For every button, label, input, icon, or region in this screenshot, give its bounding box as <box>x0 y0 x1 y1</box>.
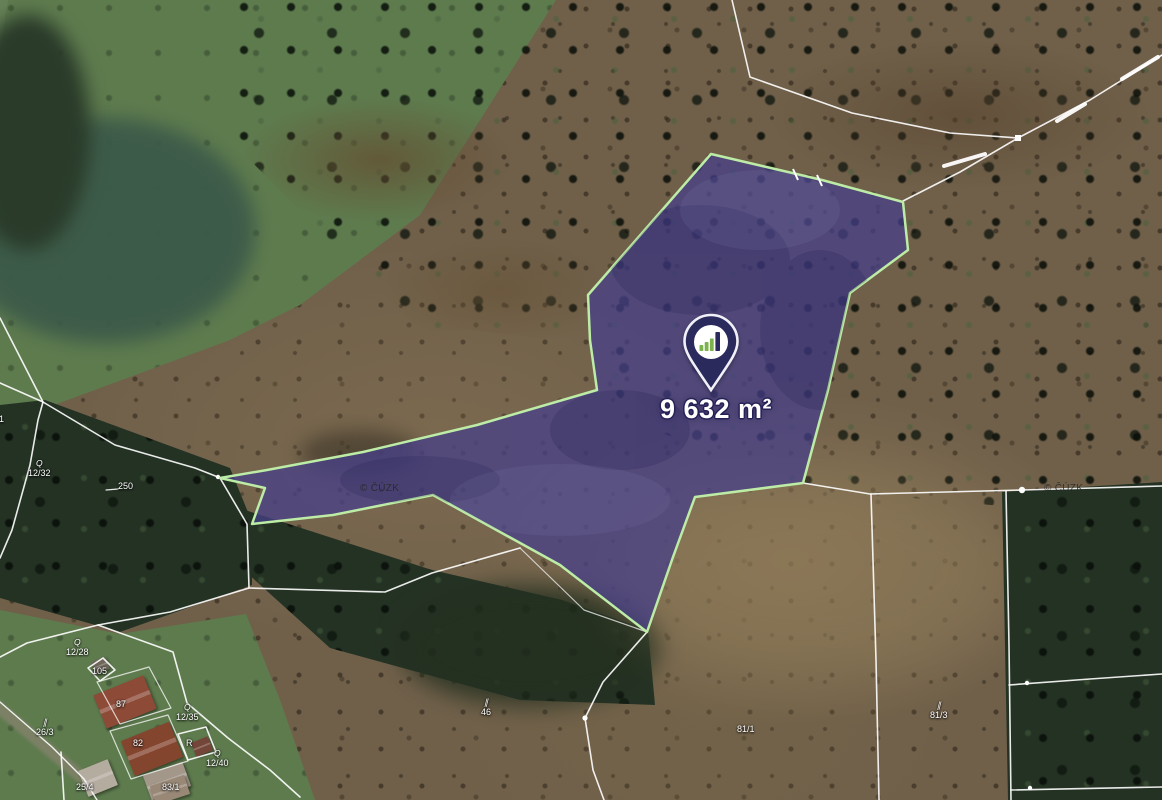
parcel-label: Q12/32 <box>28 458 51 479</box>
map-canvas[interactable]: 31Q12/32250Q12/2810587∥26/3Q12/3582RQ12/… <box>0 0 1162 800</box>
parcel-labels-layer: 31Q12/32250Q12/2810587∥26/3Q12/3582RQ12/… <box>0 0 1162 800</box>
land-use-symbol: ∥ <box>481 697 491 707</box>
parcel-label: Q12/35 <box>176 702 199 723</box>
land-use-symbol: Q <box>176 702 199 712</box>
parcel-label: 25/4 <box>76 782 94 793</box>
parcel-label: ∥26/3 <box>36 717 54 738</box>
parcel-label: 87 <box>116 699 126 710</box>
parcel-label: 250 <box>118 481 133 492</box>
parcel-label: ∥46 <box>481 697 491 718</box>
location-pin[interactable] <box>679 312 743 394</box>
parcel-label: R <box>186 738 193 749</box>
copyright-watermark: © ČÚZK <box>360 483 399 494</box>
land-use-symbol: Q <box>28 458 51 468</box>
land-use-symbol: Q <box>206 748 229 758</box>
parcel-label: 31 <box>0 414 4 425</box>
parcel-label: Q12/40 <box>206 748 229 769</box>
parcel-label: ∥81/3 <box>930 700 948 721</box>
land-use-symbol: Q <box>66 637 89 647</box>
parcel-label: 81/1 <box>737 724 755 735</box>
land-use-symbol: ∥ <box>36 717 54 727</box>
parcel-label: 105 <box>92 666 107 677</box>
parcel-label: Q12/28 <box>66 637 89 658</box>
parcel-label: 83/1 <box>162 782 180 793</box>
land-use-symbol: ∥ <box>930 700 948 710</box>
parcel-area-label: 9 632 m² <box>596 394 836 425</box>
parcel-label: 82 <box>133 738 143 749</box>
copyright-watermark: © ČÚZK <box>1044 483 1083 494</box>
